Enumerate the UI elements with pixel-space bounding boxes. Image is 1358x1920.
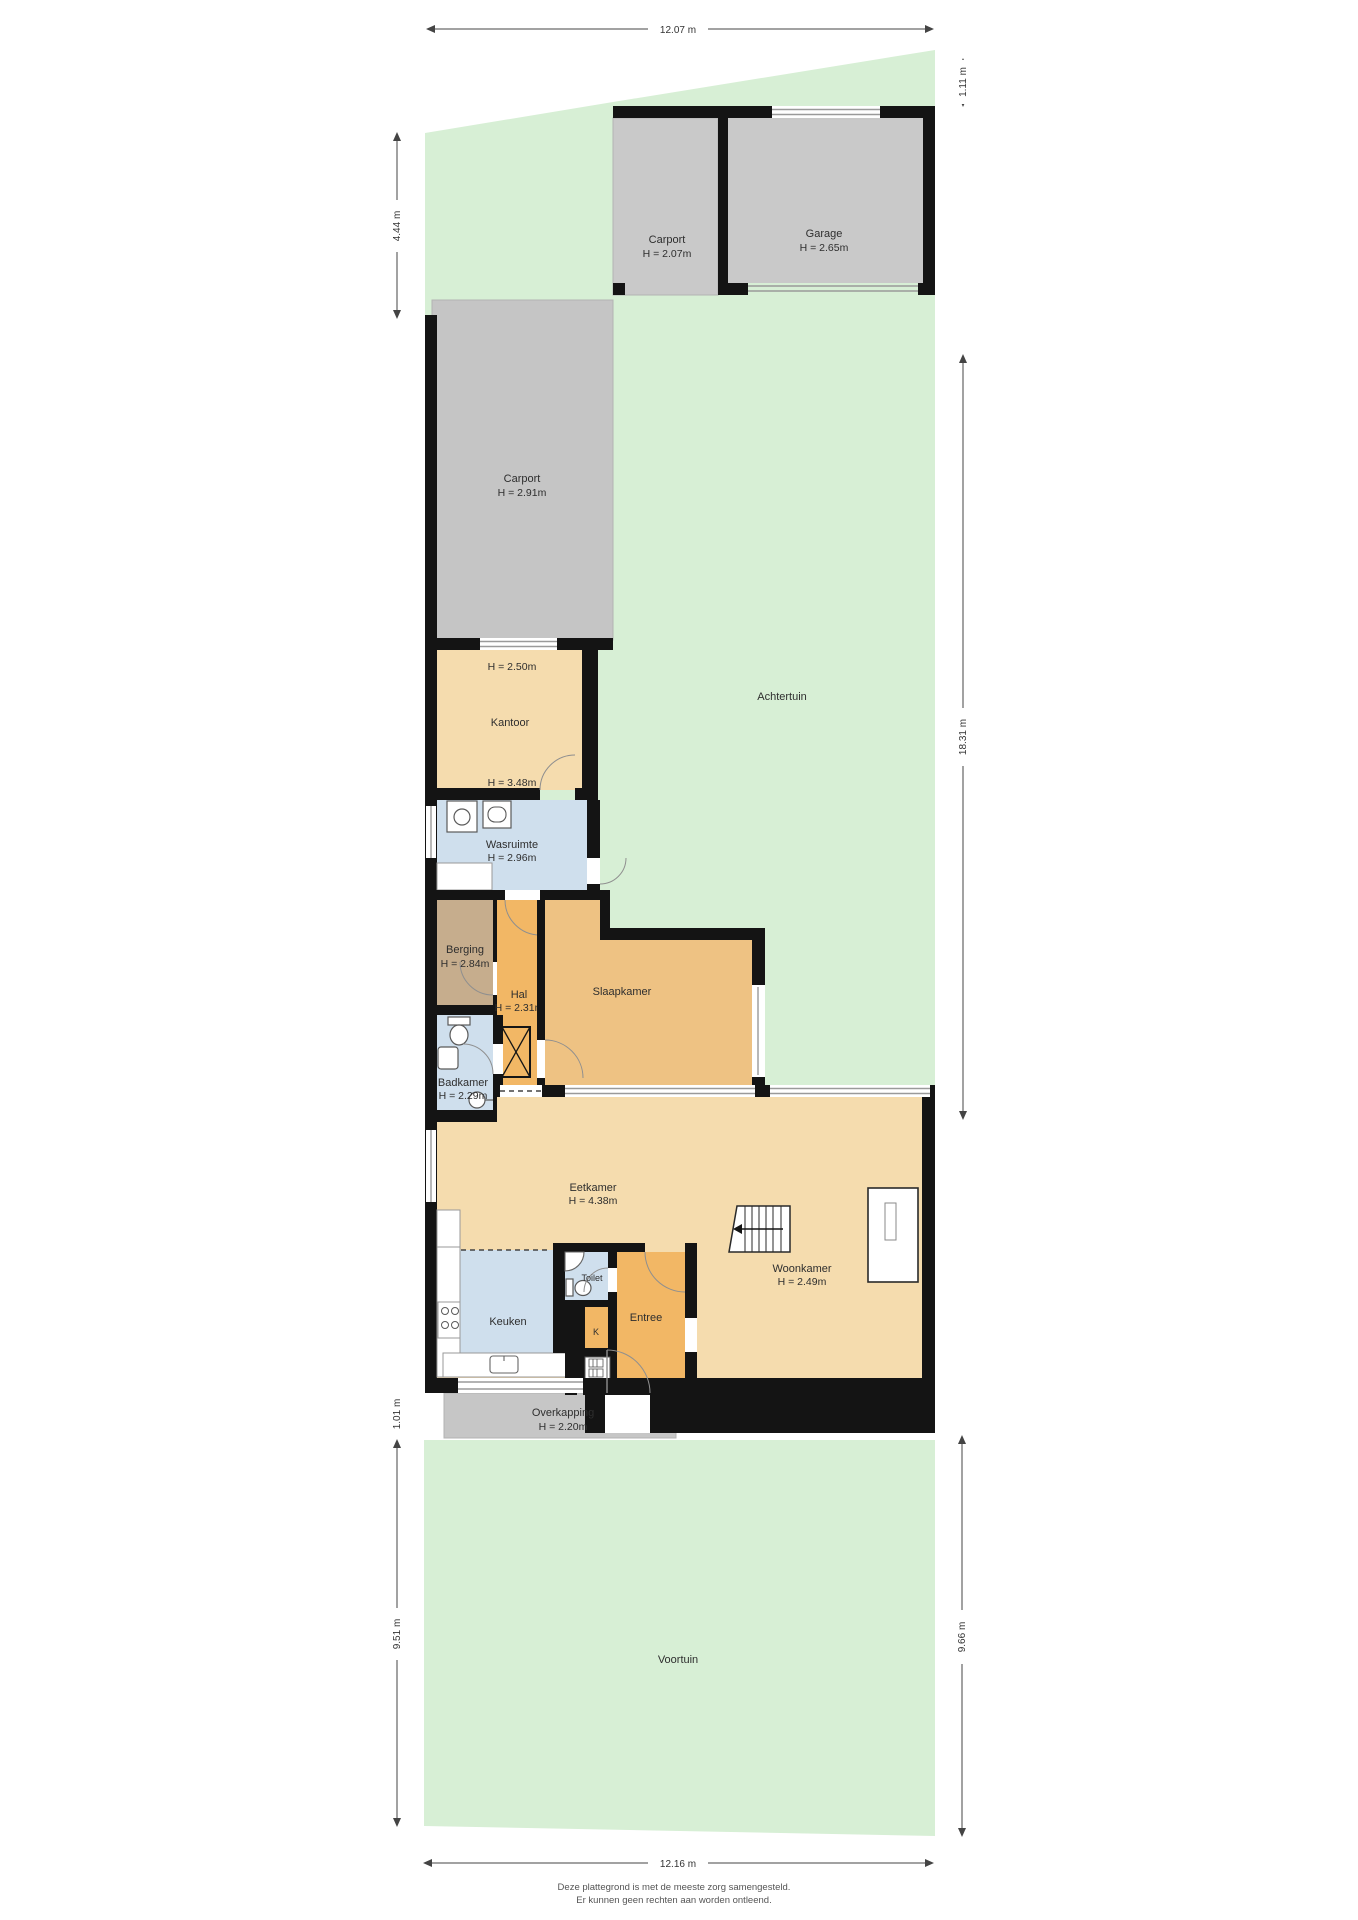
dim-upper-left: 4.44 m xyxy=(392,211,403,242)
garage-area xyxy=(728,118,923,283)
garage-top-window xyxy=(772,106,880,118)
overkapping-label: Overkapping xyxy=(532,1407,594,1419)
berging-bottom-wall xyxy=(425,1005,503,1015)
fireplace-icon xyxy=(868,1188,918,1282)
dim-middle-right: 18.31 m xyxy=(958,719,969,755)
keuken-label: Keuken xyxy=(489,1316,526,1328)
carport-top-height: H = 2.07m xyxy=(643,248,692,260)
carport-long-label: Carport xyxy=(504,473,541,485)
carport-post xyxy=(613,283,625,295)
carport-long-area xyxy=(432,300,613,640)
wasruimte-counter xyxy=(437,863,492,890)
carport-top-wall xyxy=(613,106,728,118)
toilet-tank-icon xyxy=(448,1017,470,1025)
dim-top-right: 1.11 m xyxy=(958,67,969,97)
dim-top: 12.07 m xyxy=(660,25,696,36)
toilet-bowl-icon xyxy=(450,1025,468,1045)
garage-top-wall-left xyxy=(728,106,772,118)
slaapkamer-left-door-gap xyxy=(537,1040,545,1078)
washing-machine-icon xyxy=(447,801,477,832)
badkamer-height: H = 2.29m xyxy=(439,1090,488,1102)
voortuin-garden xyxy=(424,1440,935,1836)
hal-height: H = 2.31m xyxy=(495,1002,544,1014)
kantoor-height-back: H = 3.48m xyxy=(488,777,537,789)
wasruimte-right-door-gap xyxy=(587,858,600,884)
dim-lower-right: 9.66 m xyxy=(957,1622,968,1653)
garage-carport-divider-wall xyxy=(718,106,728,295)
kantoor-bottom-wall-left xyxy=(425,788,540,800)
keuken-room xyxy=(460,1250,553,1353)
house-top-window-2 xyxy=(770,1085,930,1097)
keuken-bottom-window xyxy=(458,1378,583,1393)
entree-woonkamer-gap xyxy=(685,1318,697,1352)
overkapping-height: H = 2.20m xyxy=(539,1421,588,1433)
kantoor-label: Kantoor xyxy=(491,717,530,729)
garage-label: Garage xyxy=(806,228,843,240)
keuken-cabinet-top xyxy=(437,1210,460,1247)
eetkamer-height: H = 4.38m xyxy=(569,1195,618,1207)
eetkamer-label: Eetkamer xyxy=(569,1182,616,1194)
badkamer-bottom-wall xyxy=(425,1110,503,1122)
front-wall xyxy=(583,1378,935,1395)
laundry-basin-icon xyxy=(488,807,506,822)
carport-top-label: Carport xyxy=(649,234,686,246)
stove-icon xyxy=(438,1302,460,1338)
kast-label: K xyxy=(593,1327,599,1337)
stairs-icon xyxy=(729,1206,790,1252)
footer-line-1: Deze plattegrond is met de meeste zorg s… xyxy=(558,1882,791,1893)
voortuin-label: Voortuin xyxy=(658,1654,698,1666)
woonkamer-height: H = 2.49m xyxy=(778,1276,827,1288)
meterkast-icon xyxy=(585,1357,610,1380)
carport-long-height: H = 2.91m xyxy=(498,487,547,499)
kantoor-bottom-wall-right xyxy=(575,788,598,800)
wc-tank-icon xyxy=(566,1279,573,1296)
kantoor-height-front: H = 2.50m xyxy=(488,661,537,673)
slaapkamer-top-wall-h xyxy=(600,928,765,940)
woonkamer-label: Woonkamer xyxy=(772,1263,831,1275)
hal-label: Hal xyxy=(511,989,528,1001)
garage-bottom-wall-left xyxy=(728,283,748,295)
garage-bottom-wall-right xyxy=(918,283,935,295)
house-top-window-1 xyxy=(565,1085,755,1097)
island-sink-icon xyxy=(490,1356,518,1373)
house-right-wall xyxy=(922,1097,935,1395)
shower-basin-icon xyxy=(438,1047,458,1069)
toilet-label: Toilet xyxy=(581,1273,603,1283)
dim-lower-left: 9.51 m xyxy=(392,1619,403,1650)
kantoor-top-wall-left xyxy=(425,638,480,650)
bottom-wall-corner-left xyxy=(425,1378,458,1393)
berging-height: H = 2.84m xyxy=(441,958,490,970)
wasruimte-height: H = 2.96m xyxy=(488,852,537,864)
front-door-gap xyxy=(605,1395,650,1433)
dim-overkapping-left: 1.01 m xyxy=(392,1399,403,1430)
badkamer-label: Badkamer xyxy=(438,1077,488,1089)
kantoor-top-wall-right xyxy=(557,638,613,650)
garage-right-wall xyxy=(923,106,935,295)
floorplan-canvas: Carport H = 2.07m Garage H = 2.65m Carpo… xyxy=(0,0,1358,1920)
slaapkamer-label: Slaapkamer xyxy=(593,986,652,998)
kantoor-right-wall xyxy=(582,650,598,790)
dim-bottom: 12.16 m xyxy=(660,1859,696,1870)
kast-bottom-wall xyxy=(577,1348,617,1357)
kantoor-top-window xyxy=(480,638,557,650)
hal-entry-gap xyxy=(505,890,540,900)
toilet-bottom-wall xyxy=(553,1300,617,1307)
toilet-door-gap xyxy=(608,1268,617,1292)
badkamer-door-gap xyxy=(493,1044,503,1074)
berging-label: Berging xyxy=(446,944,484,956)
entree-label: Entree xyxy=(630,1312,662,1324)
carport-top-area xyxy=(613,118,718,295)
footer-line-2: Er kunnen geen rechten aan worden ontlee… xyxy=(576,1895,771,1906)
achtertuin-label: Achtertuin xyxy=(757,691,807,703)
toilet-top-wall xyxy=(553,1243,645,1252)
garage-height: H = 2.65m xyxy=(800,242,849,254)
wasruimte-label: Wasruimte xyxy=(486,839,538,851)
